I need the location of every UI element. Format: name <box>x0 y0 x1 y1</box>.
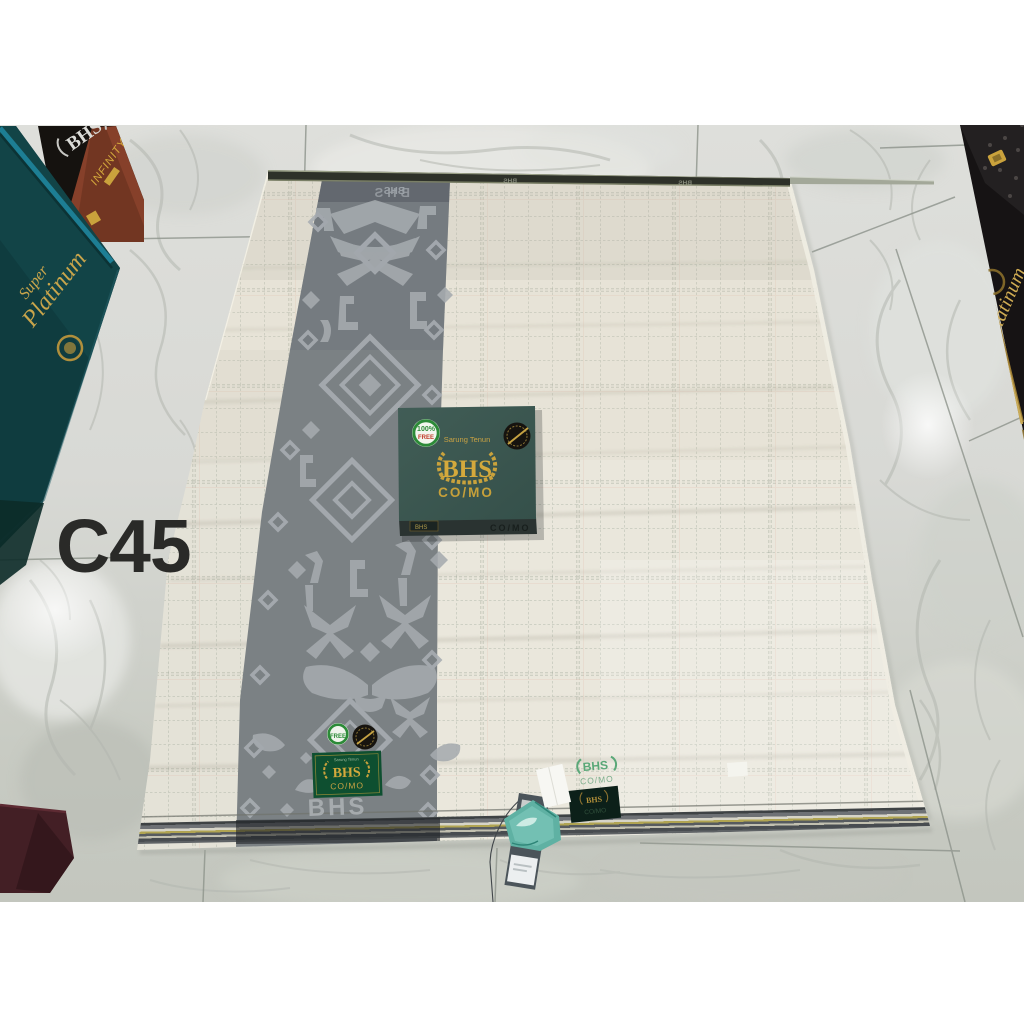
svg-text:FREE: FREE <box>418 435 434 441</box>
svg-text:FREE: FREE <box>330 734 346 740</box>
svg-text:Sarung Tenun: Sarung Tenun <box>334 756 359 762</box>
svg-text:BHS: BHS <box>307 793 368 822</box>
svg-text:BHS: BHS <box>582 758 608 774</box>
svg-text:100%: 100% <box>417 426 436 433</box>
svg-text:Sarung Tenun: Sarung Tenun <box>444 435 491 444</box>
svg-text:CO/MO: CO/MO <box>438 485 494 500</box>
svg-text:BHS: BHS <box>442 456 492 483</box>
svg-text:BHS: BHS <box>503 178 517 185</box>
svg-text:BHS: BHS <box>586 794 603 805</box>
svg-text:BHS: BHS <box>384 186 405 197</box>
svg-text:BHS: BHS <box>678 180 692 187</box>
svg-text:BHS: BHS <box>415 525 427 531</box>
svg-text:BHS: BHS <box>332 765 361 781</box>
svg-text:CO/MO: CO/MO <box>490 523 531 533</box>
svg-text:CO/MO: CO/MO <box>330 780 364 791</box>
svg-text:C45: C45 <box>56 504 191 588</box>
